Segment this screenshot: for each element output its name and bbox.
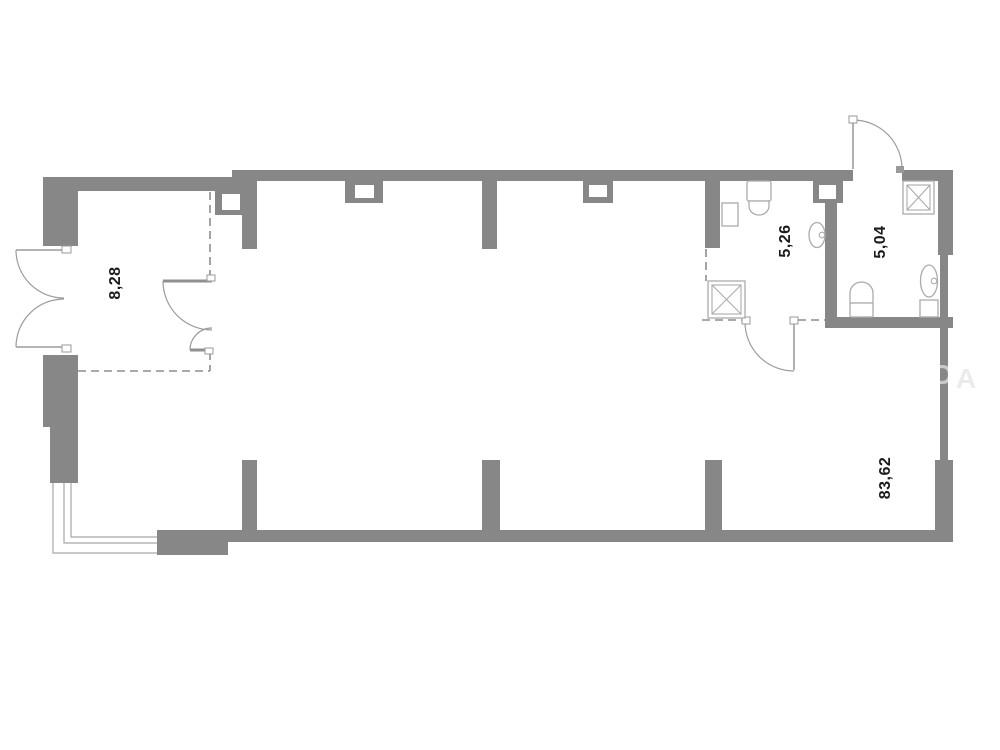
wall-bathroom-bottom [825,317,953,328]
wall-bottom-left-block [157,530,228,555]
door-swing-arc [163,281,212,330]
sill-line-middle [64,483,157,543]
wall-right-mid [940,255,948,460]
watermark: D A [933,359,976,394]
pilaster-3 [705,460,722,530]
sink [809,223,825,248]
area-label-bathroom-right: 5,04 [872,225,889,258]
double-door-exterior [16,246,71,352]
washbasin [722,203,738,226]
toilet-bowl [749,201,769,215]
door-leaf-cap [849,116,857,123]
wall-left-upper [43,177,78,246]
door-jamb-mark [205,348,213,354]
area-label-bathroom-left: 5,26 [777,224,794,257]
room-area-labels: 8,28 5,26 5,04 83,62 [107,224,894,499]
door-swing-arc [190,328,212,350]
floor-plan-drawing: 8,28 5,26 5,04 83,62 D A [0,0,1000,750]
wall-left-lower [50,427,78,483]
sink [921,265,938,297]
fixtures-bathroom-right [850,181,938,317]
door-swing-arc [16,250,64,298]
wall-right-upper [938,181,953,255]
wall-top-right [902,170,953,181]
wall-right-lower [935,460,953,531]
pier-top-3 [705,181,720,248]
pilaster-2 [482,460,500,530]
door-swing-arc [745,322,794,371]
area-label-main-space: 83,62 [877,457,894,500]
wall-bottom-main [228,530,953,542]
door-jamb-mark [62,345,71,352]
door-jamb-mark [62,246,71,253]
toilet-tank [747,181,771,201]
floor-plan: 8,28 5,26 5,04 83,62 D A [0,0,1000,750]
pier-top-2 [482,181,497,249]
door-swing-arc [16,299,64,347]
area-label-entry-room: 8,28 [107,266,124,299]
door-jamb-mark [790,317,798,324]
double-door-entry-room [163,275,215,354]
watermark-letter-d: D [933,359,953,390]
sill-line-inner [71,483,157,537]
watermark-letter-a: A [956,363,976,394]
duct-box-1-void [222,194,240,210]
corner-sill-lines [53,483,157,553]
fixtures-bathroom-left [708,181,825,318]
door-bathroom-left [742,317,798,371]
duct-box-4-void [819,185,836,199]
toilet-bowl [850,282,873,303]
toilet-tank [850,303,873,317]
wall-top-main [232,170,853,181]
door-jamb-mark [896,166,904,173]
door-jamb-mark [207,275,215,281]
wall-left-mid [43,355,78,427]
wall-bathroom-partition [825,203,837,318]
cabinet [920,300,938,317]
duct-box-3-void [589,185,607,197]
duct-box-2-void [355,185,374,198]
door-entrance [849,116,904,173]
pilaster-1 [242,460,257,530]
door-swing-arc [853,120,902,169]
